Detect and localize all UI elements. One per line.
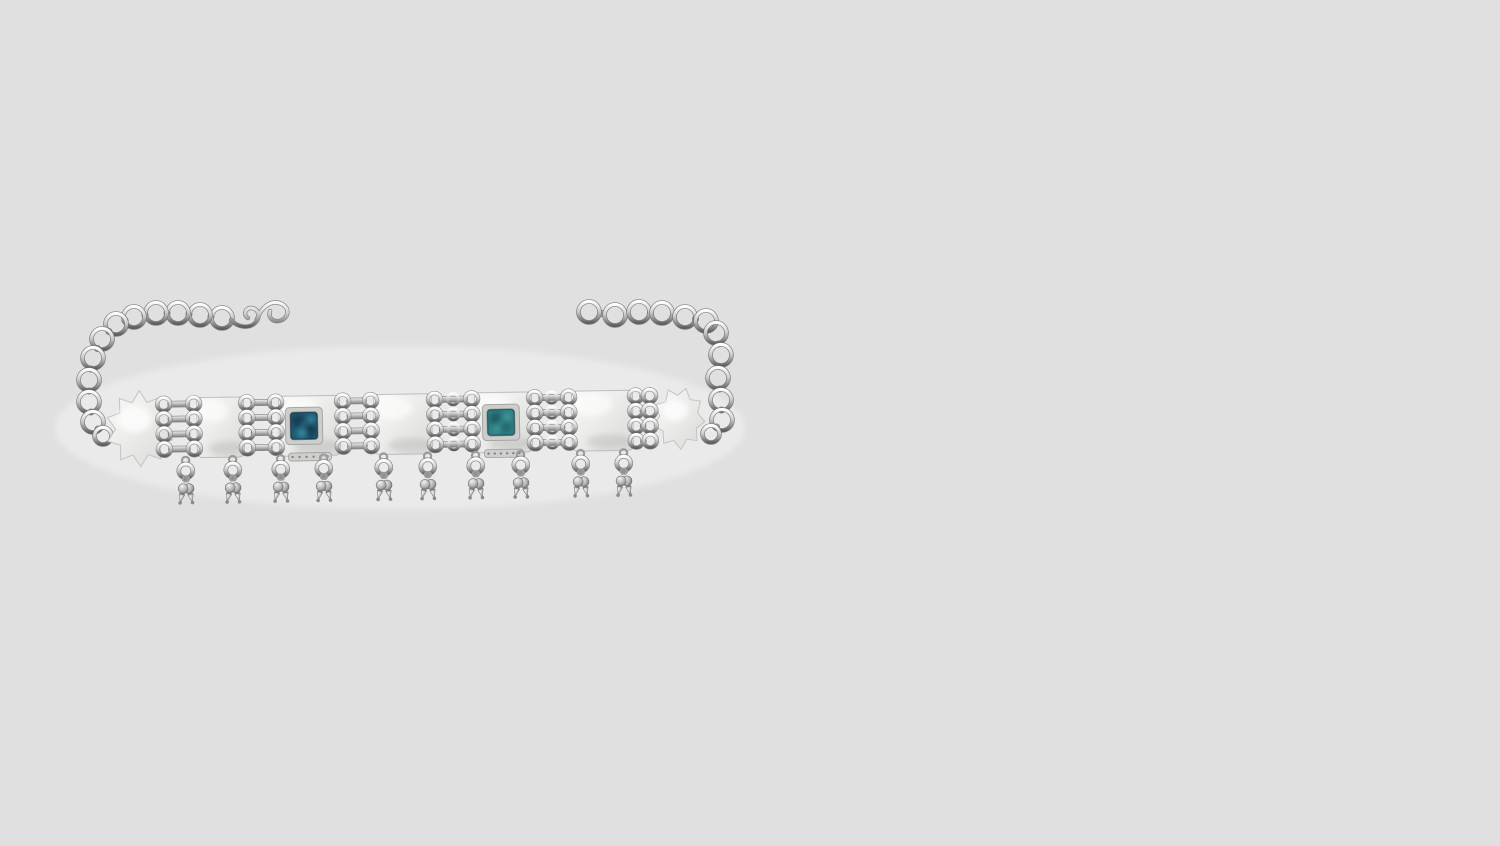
product-photo <box>0 0 1500 846</box>
right-chain-ring <box>708 368 729 389</box>
right-chain-ring <box>605 305 626 326</box>
drop-tip-ball <box>225 500 229 504</box>
necklace-illustration <box>0 0 1500 846</box>
left-chain-ring <box>83 348 104 369</box>
drop-tip-ball <box>628 493 632 497</box>
drop-tip-ball <box>178 501 182 505</box>
right-chain-ring <box>652 303 673 324</box>
drop-tip-ball <box>616 493 620 497</box>
left-chain-ring <box>146 303 167 324</box>
right-chain-ring <box>579 302 600 323</box>
left-chain-ring <box>212 308 233 329</box>
right-chain-ring <box>711 345 732 366</box>
left-chain-ring <box>79 370 100 391</box>
left-chain-ring <box>168 303 189 324</box>
right-chain-ring <box>675 307 696 328</box>
left-chain-ring <box>190 305 211 326</box>
right-chain-ring <box>629 302 650 323</box>
drop-tip-ball <box>190 500 194 504</box>
